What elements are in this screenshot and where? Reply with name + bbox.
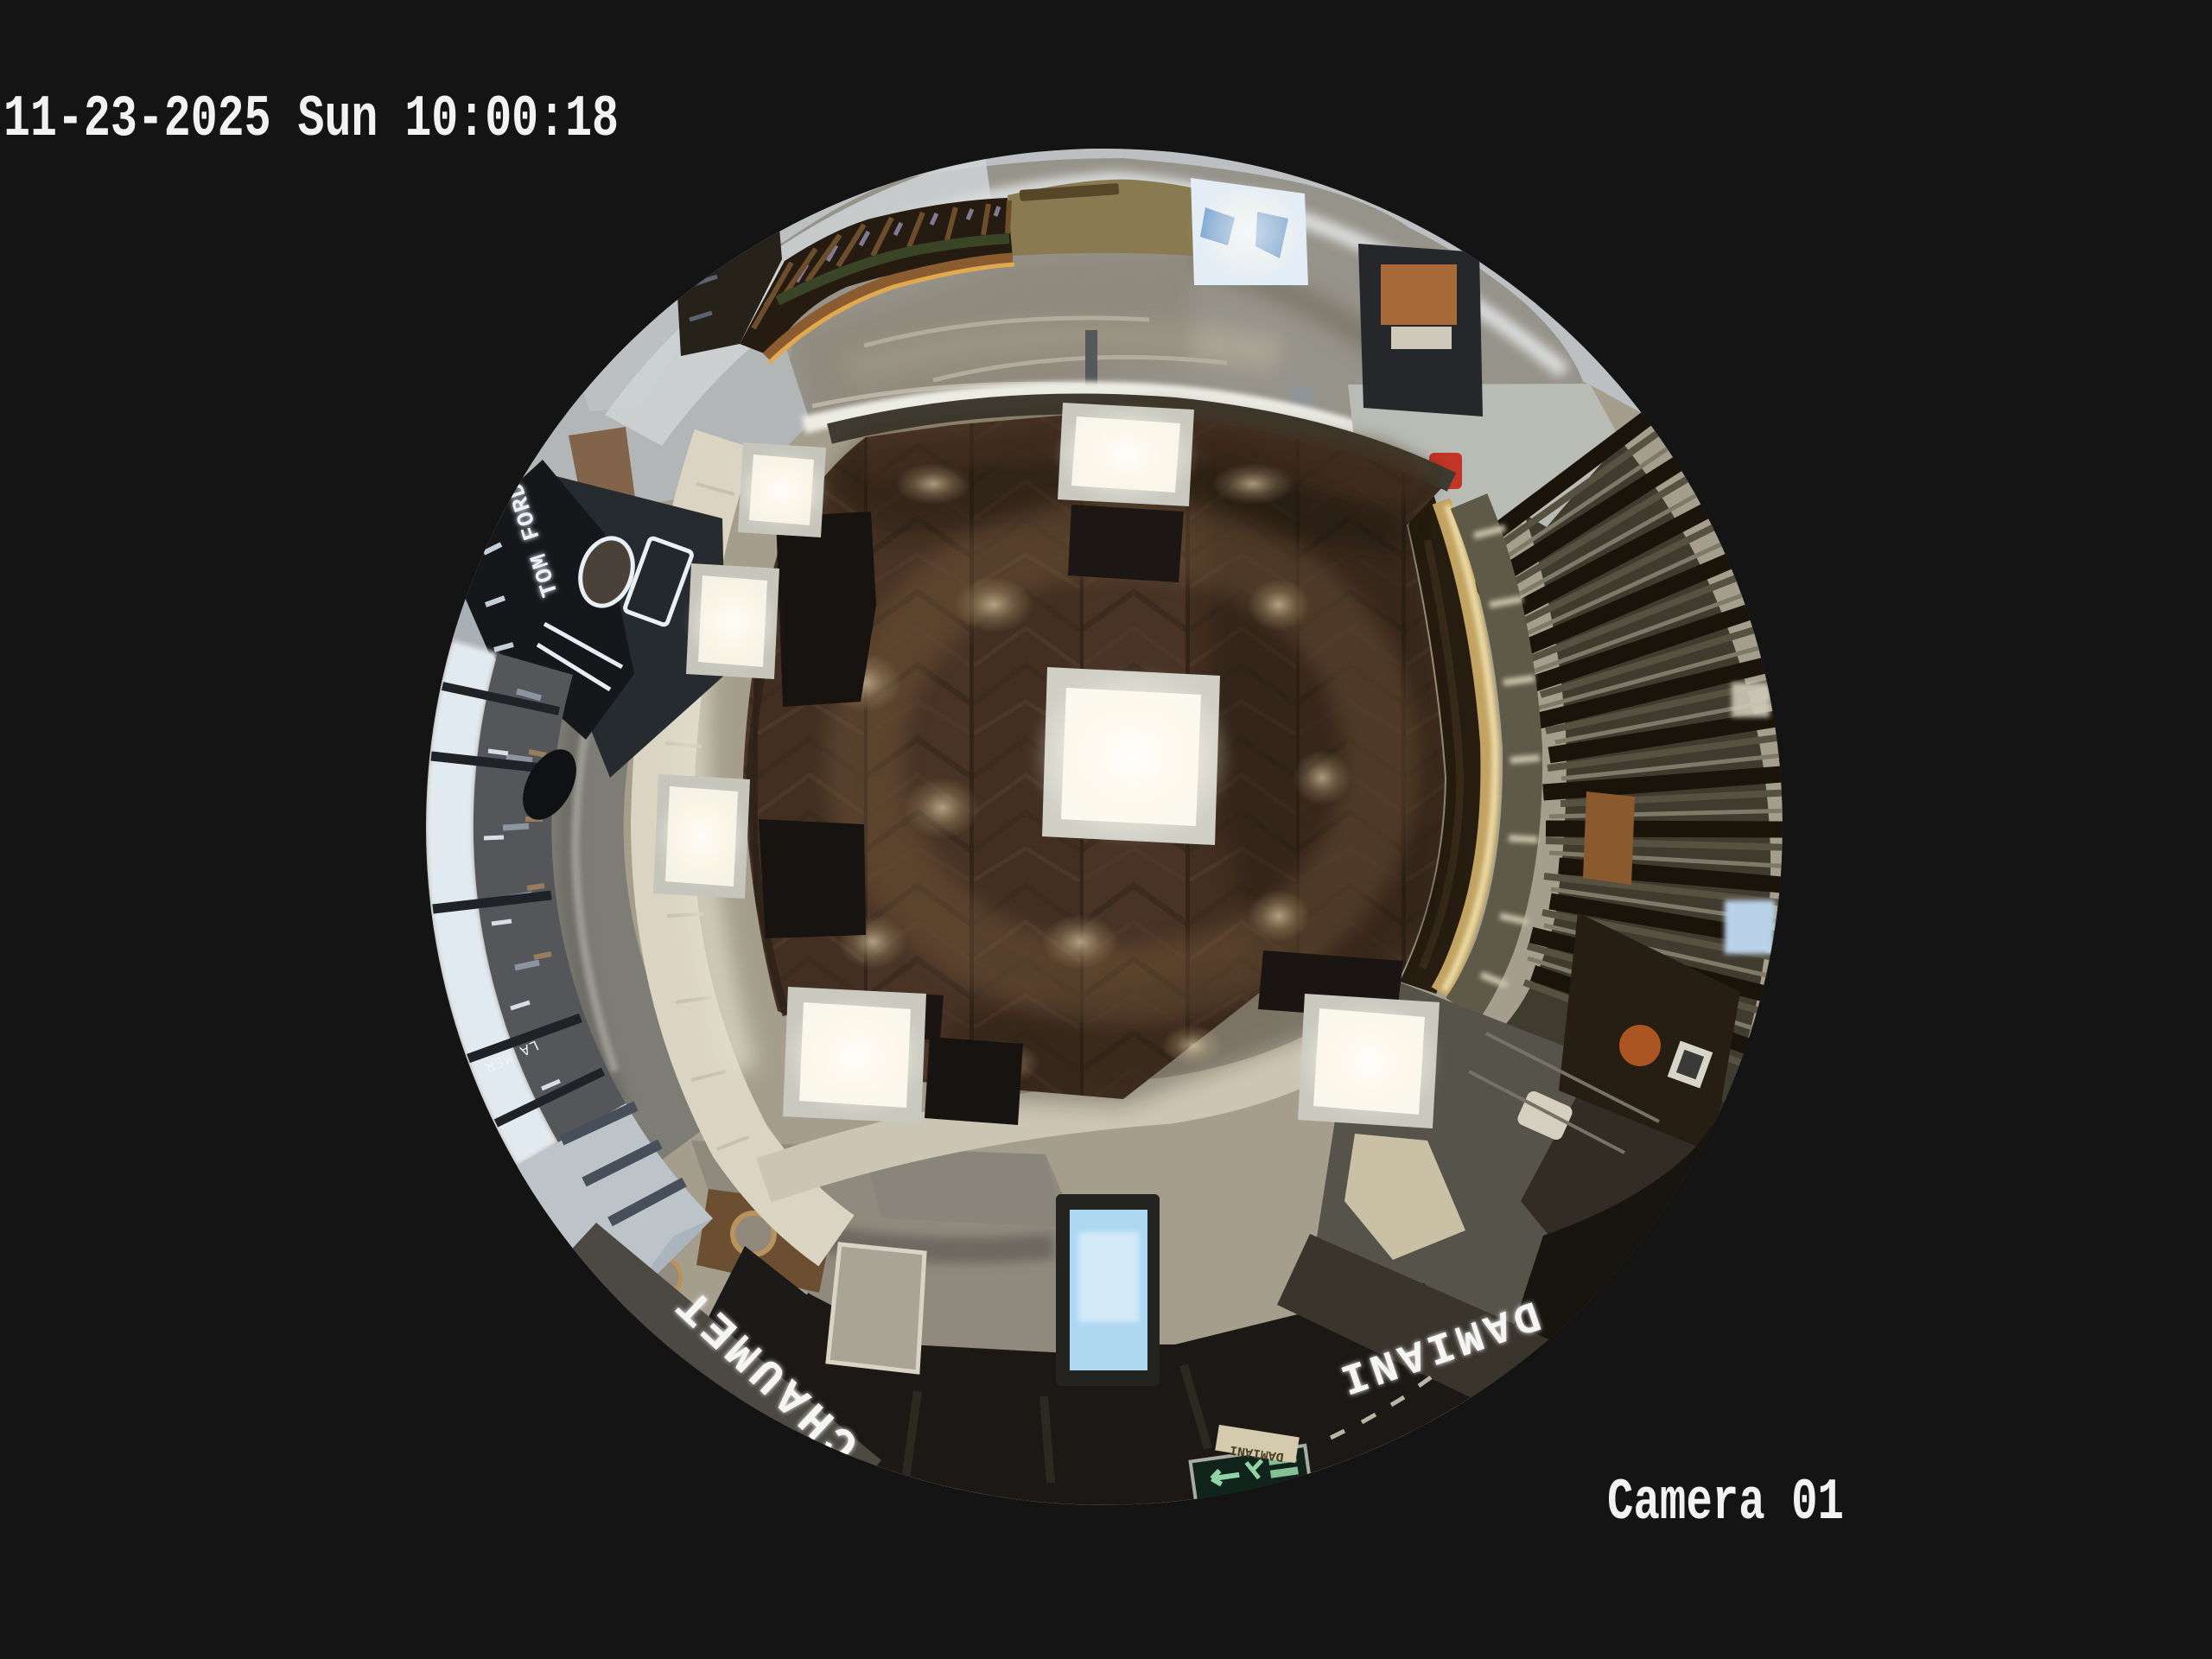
svg-text:Camera 01: Camera 01 <box>1607 1470 1844 1536</box>
svg-text:11-23-2025 Sun 10:00:18: 11-23-2025 Sun 10:00:18 <box>3 86 619 153</box>
